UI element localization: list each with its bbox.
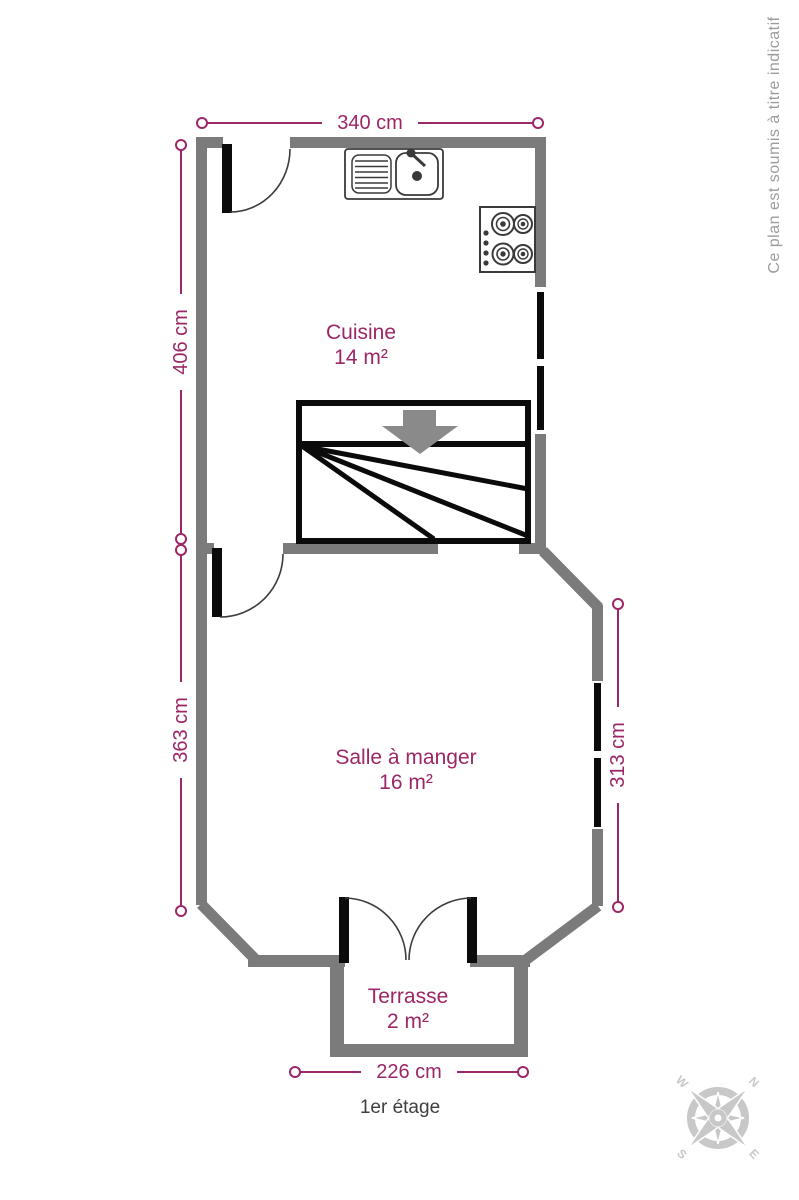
wall-terrace-bottom <box>330 1044 528 1057</box>
room-name-cuisine: Cuisine <box>281 320 441 345</box>
stove-icon <box>480 207 535 272</box>
wall-chamfer-bottom-right <box>527 906 598 959</box>
dimension-label-right: 313 cm <box>606 707 630 803</box>
window-kitchen-right-1 <box>537 292 544 359</box>
door-leaf-french-left <box>339 897 349 963</box>
door-arc-french-right <box>409 898 471 960</box>
wall-left <box>196 137 207 905</box>
window-kitchen-right-2 <box>537 366 544 430</box>
sink-drain <box>412 171 422 181</box>
dimension-label-left-upper: 406 cm <box>169 294 193 390</box>
door-arc-french-left <box>345 898 406 960</box>
door-arc-dining <box>220 554 283 617</box>
wall-dining-right-lower <box>592 829 603 906</box>
stairs-icon <box>296 400 531 544</box>
dimension-label-bottom: 226 cm <box>361 1060 457 1084</box>
compass-label-south: S <box>674 1146 690 1162</box>
room-name-salle-a-manger: Salle à manger <box>296 745 516 770</box>
room-label-cuisine: Cuisine 14 m² <box>281 320 441 370</box>
room-label-salle-a-manger: Salle à manger 16 m² <box>296 745 516 795</box>
dimension-label-top: 340 cm <box>322 111 418 135</box>
room-area-cuisine: 14 m² <box>281 345 441 370</box>
floor-level-label: 1er étage <box>320 1097 480 1119</box>
room-area-terrasse: 2 m² <box>328 1009 488 1034</box>
stairs-winder-treads <box>302 446 528 539</box>
floorplan-canvas: N E S W 340 cm 406 cm 363 cm 313 cm 226 … <box>0 0 799 1200</box>
window-dining-right-2 <box>594 758 601 827</box>
wall-top <box>290 137 546 148</box>
walls <box>196 137 603 1057</box>
room-area-salle-a-manger: 16 m² <box>296 770 516 795</box>
wall-kitchen-right-lower <box>535 434 546 554</box>
disclaimer-watermark: Ce plan est soumis à titre indicatif <box>765 5 785 285</box>
room-name-terrasse: Terrasse <box>328 984 488 1009</box>
wall-dining-right-upper <box>592 605 603 681</box>
wall-divider-stub <box>196 543 214 554</box>
sink-icon <box>345 149 443 200</box>
dimension-label-left-lower: 363 cm <box>169 682 193 778</box>
wall-chamfer-bottom-left <box>201 904 255 959</box>
stairs-down-arrow-icon <box>382 410 458 454</box>
compass-rose-icon: N E S W <box>637 1037 798 1198</box>
wall-chamfer-top-right <box>543 551 599 608</box>
wall-terrace-right <box>514 958 528 1057</box>
compass-label-east: E <box>746 1146 762 1162</box>
door-leaf-dining <box>212 548 222 617</box>
door-arc-kitchen <box>230 149 290 212</box>
window-dining-right-1 <box>594 683 601 751</box>
door-leaf-kitchen <box>222 144 232 213</box>
wall-kitchen-right-upper <box>535 137 546 287</box>
room-label-terrasse: Terrasse 2 m² <box>328 984 488 1034</box>
wall-divider-mid <box>283 543 438 554</box>
door-leaf-french-right <box>467 897 477 963</box>
